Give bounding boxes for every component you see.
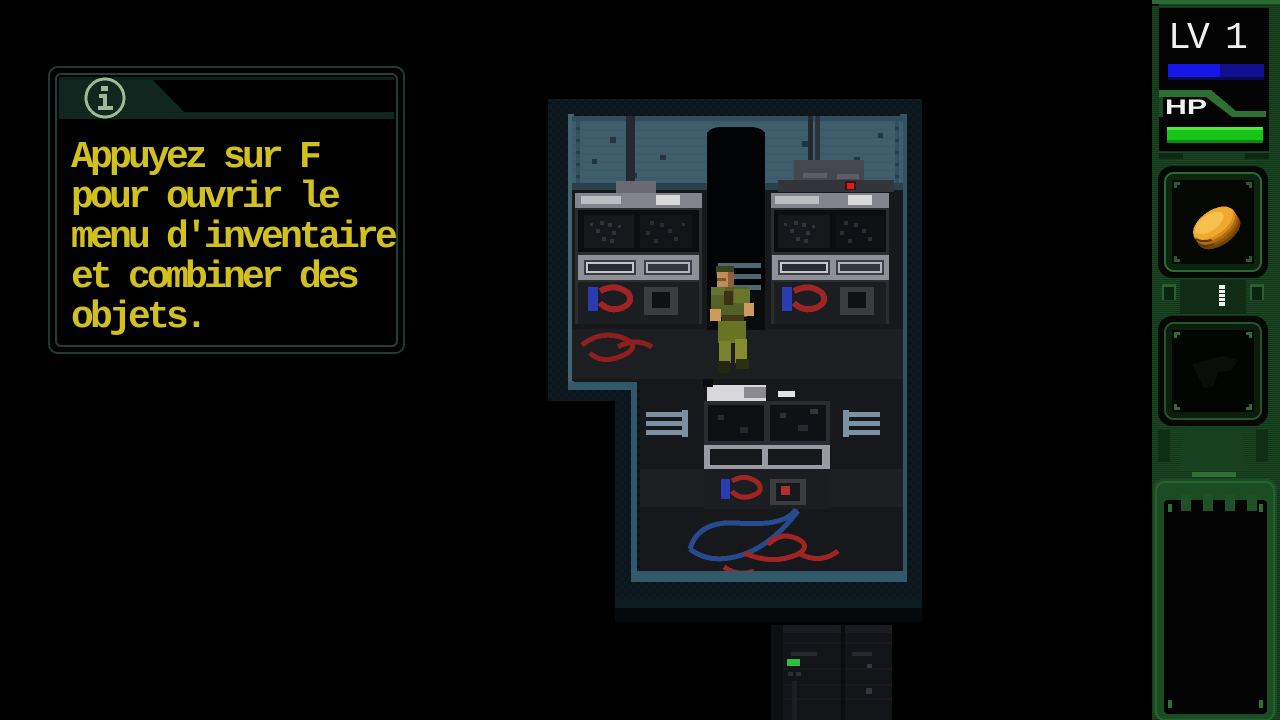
svg-text:LV 1: LV 1 bbox=[1168, 17, 1246, 60]
svg-text:HP: HP bbox=[1165, 96, 1207, 119]
